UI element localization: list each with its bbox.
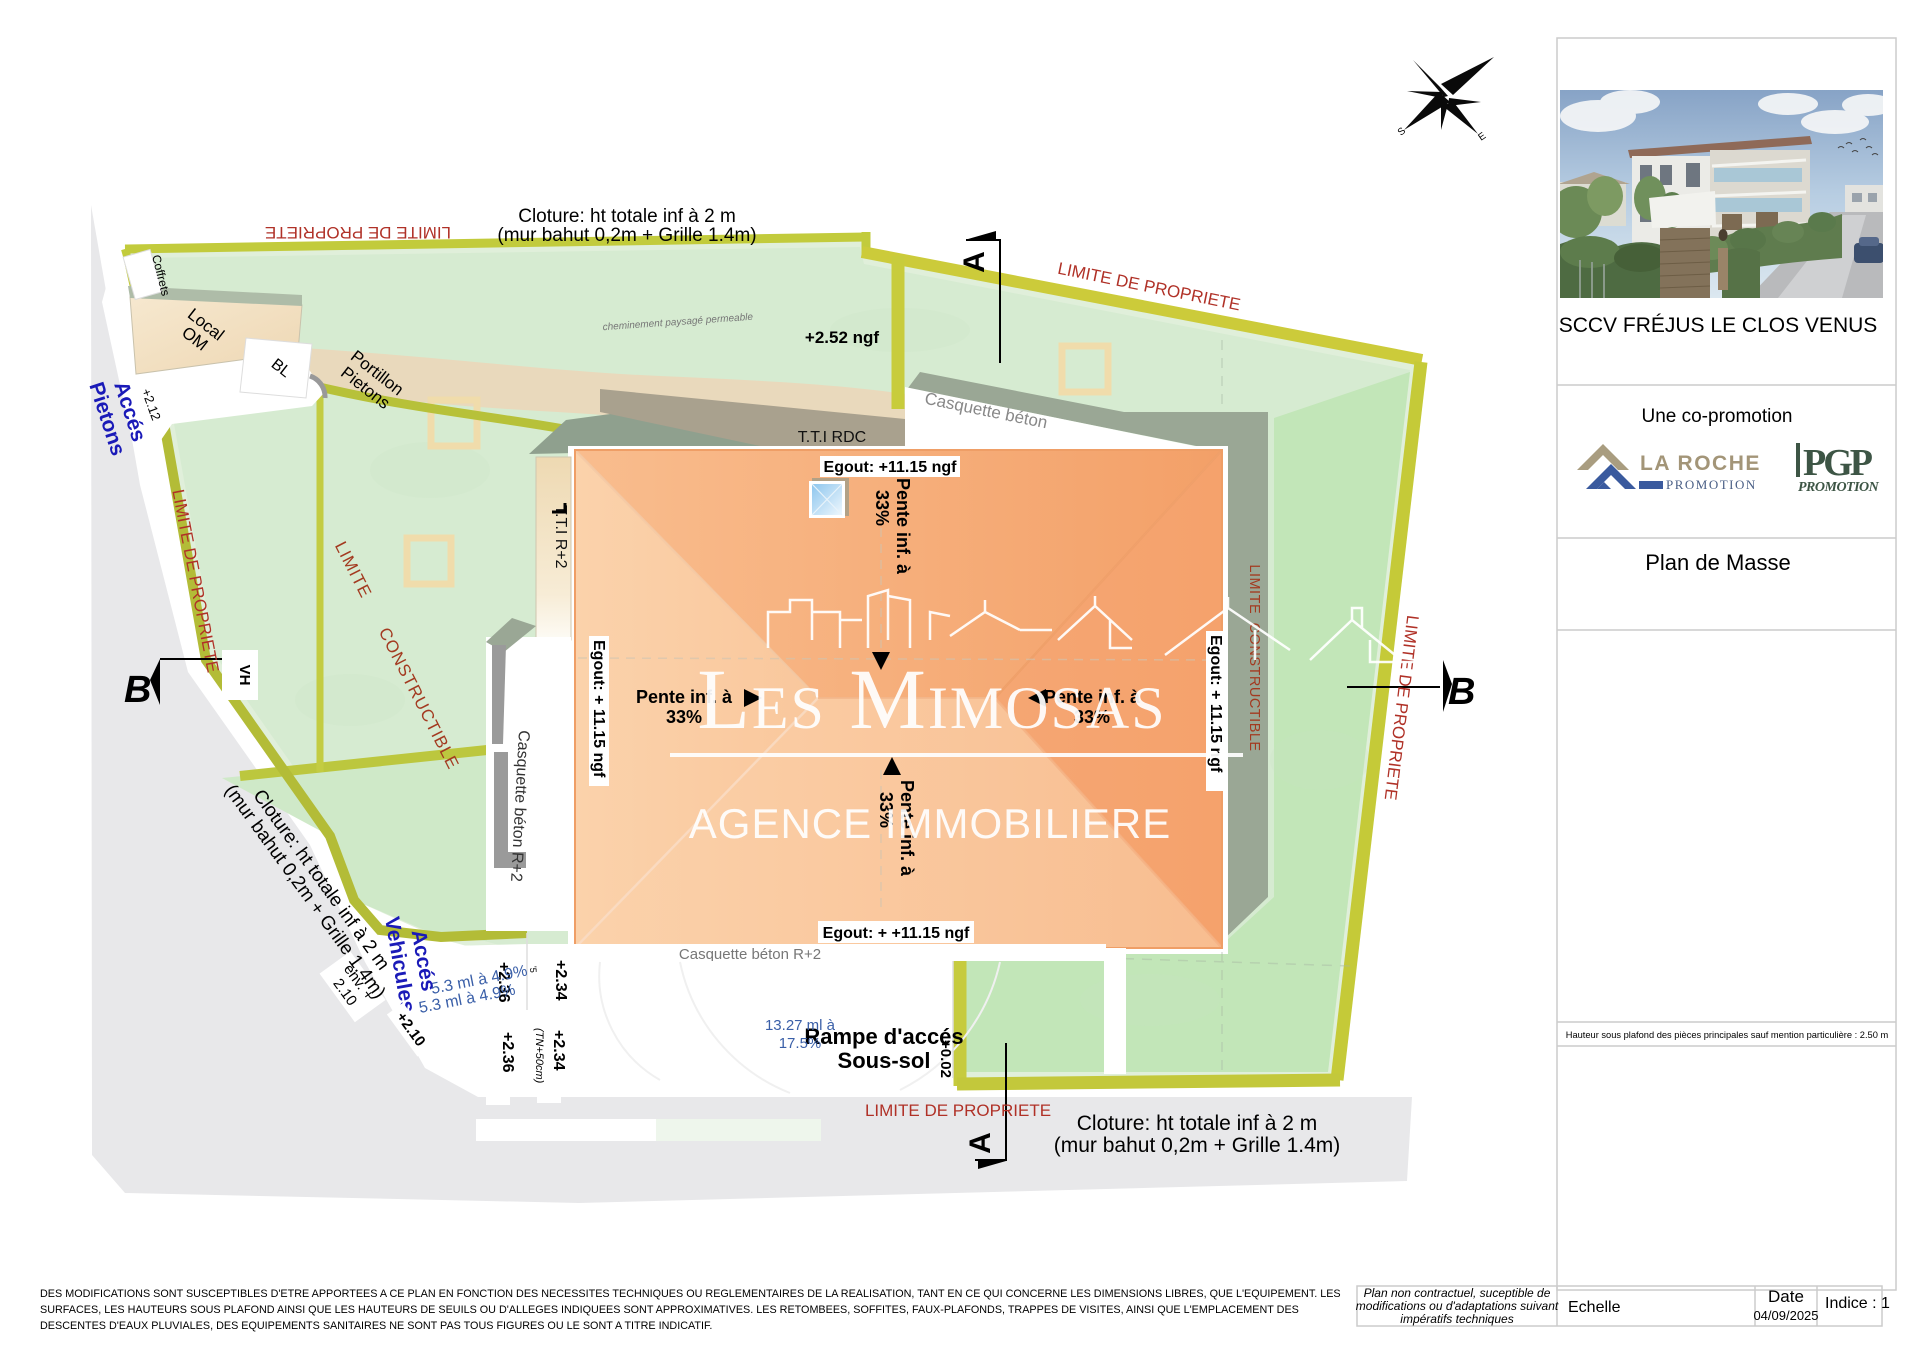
- svg-text:+0.02: +0.02: [937, 1040, 954, 1078]
- svg-text:Date: Date: [1768, 1287, 1804, 1306]
- svg-text:Cloture: ht totale inf à 2 m: Cloture: ht totale inf à 2 m: [518, 206, 736, 227]
- svg-text:PGP: PGP: [1803, 442, 1873, 484]
- svg-text:modifications ou d'adaptations: modifications ou d'adaptations suivant: [1356, 1299, 1559, 1313]
- svg-text:Plan de Masse: Plan de Masse: [1645, 550, 1791, 575]
- svg-text:SURFACES, LES HAUTEURS SOUS PL: SURFACES, LES HAUTEURS SOUS PLAFOND AINS…: [40, 1304, 1299, 1316]
- svg-text:B: B: [1448, 671, 1475, 713]
- svg-text:A: A: [958, 251, 991, 273]
- svg-text:LA ROCHE: LA ROCHE: [1640, 452, 1761, 475]
- svg-text:Egout: + 11.15 ngf: Egout: + 11.15 ngf: [590, 640, 607, 778]
- svg-text:'5: '5: [528, 966, 538, 973]
- svg-text:A: A: [964, 1132, 997, 1154]
- svg-text:DESCENTES D'EAUX PLUVIALES, DE: DESCENTES D'EAUX PLUVIALES, DES EQUIPEME…: [40, 1320, 712, 1332]
- svg-text:Plan non contractuel, suceptib: Plan non contractuel, suceptible de: [1364, 1286, 1551, 1300]
- svg-text:Echelle: Echelle: [1568, 1299, 1621, 1316]
- svg-text:04/09/2025: 04/09/2025: [1753, 1308, 1818, 1323]
- svg-text:LIMITE DE PROPRIETE: LIMITE DE PROPRIETE: [265, 223, 451, 242]
- svg-text:+2.52 ngf: +2.52 ngf: [805, 328, 880, 347]
- svg-text:Sous-sol: Sous-sol: [838, 1048, 931, 1073]
- svg-text:13.27 ml à: 13.27 ml à: [765, 1017, 836, 1034]
- svg-text:VH: VH: [236, 665, 253, 686]
- svg-text:PROMOTION: PROMOTION: [1666, 477, 1757, 492]
- svg-text:Une co-promotion: Une co-promotion: [1641, 406, 1792, 427]
- svg-text:Egout: +11.15 ngf: Egout: +11.15 ngf: [824, 459, 958, 476]
- svg-text:Egout: + 11.15 ngf: Egout: + 11.15 ngf: [1207, 635, 1224, 773]
- svg-text:Egout: + +11.15 ngf: Egout: + +11.15 ngf: [823, 925, 970, 942]
- svg-text:+2.36: +2.36: [499, 1032, 516, 1073]
- svg-text:17.5%: 17.5%: [779, 1035, 822, 1052]
- svg-text:+2.34: +2.34: [552, 960, 569, 1001]
- svg-text:Les Mimosas: Les Mimosas: [697, 651, 1166, 747]
- svg-text:LIMITE DE PROPRIETE: LIMITE DE PROPRIETE: [865, 1101, 1051, 1120]
- svg-text:T.T.I RDC: T.T.I RDC: [798, 429, 866, 446]
- svg-text:SCCV FRÉJUS LE CLOS VENUS: SCCV FRÉJUS LE CLOS VENUS: [1559, 314, 1878, 337]
- svg-text:Indice : 1: Indice : 1: [1825, 1295, 1890, 1312]
- svg-text:(mur bahut 0,2m + Grille 1.4m): (mur bahut 0,2m + Grille 1.4m): [1054, 1134, 1341, 1157]
- svg-text:impératifs techniques: impératifs techniques: [1400, 1312, 1513, 1326]
- svg-text:(mur bahut 0,2m + Grille 1.4m): (mur bahut 0,2m + Grille 1.4m): [497, 225, 756, 246]
- svg-text:DES MODIFICATIONS SONT SUSCEPT: DES MODIFICATIONS SONT SUSCEPTIBLES D'ET…: [40, 1288, 1341, 1300]
- svg-text:(TN+50cm): (TN+50cm): [533, 1028, 545, 1084]
- svg-text:Pente inf. à: Pente inf. à: [893, 478, 913, 575]
- svg-text:+2.34: +2.34: [550, 1030, 567, 1071]
- svg-text:T.T.I R+2: T.T.I R+2: [552, 505, 569, 569]
- svg-text:Cloture: ht totale inf à 2 m: Cloture: ht totale inf à 2 m: [1077, 1112, 1317, 1135]
- svg-text:33%: 33%: [872, 490, 892, 526]
- svg-text:PROMOTION: PROMOTION: [1798, 480, 1880, 495]
- svg-text:Hauteur sous plafond des pièce: Hauteur sous plafond des pièces principa…: [1566, 1030, 1889, 1040]
- svg-text:Casquette béton R+2: Casquette béton R+2: [679, 946, 821, 963]
- svg-text:B: B: [124, 669, 151, 711]
- svg-text:AGENCE IMMOBILIERE: AGENCE IMMOBILIERE: [689, 800, 1171, 847]
